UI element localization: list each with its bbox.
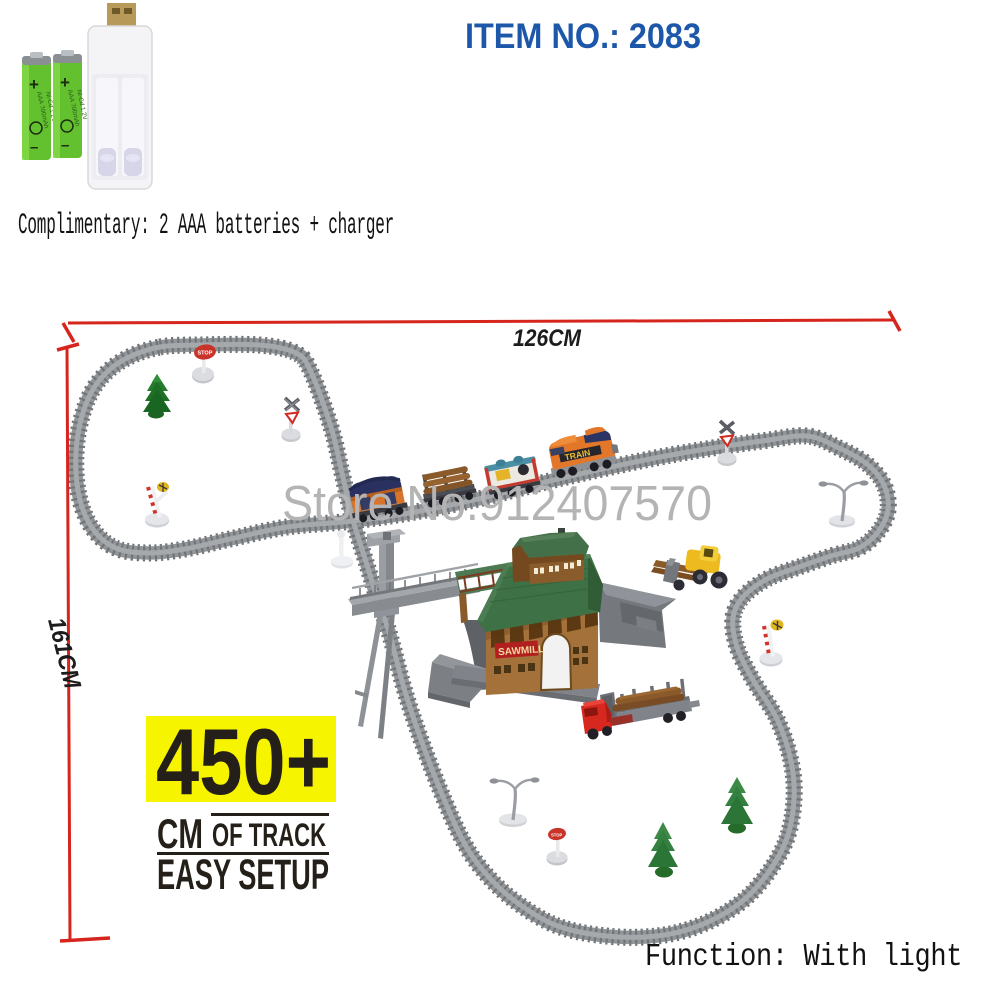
svg-text:STOP: STOP bbox=[198, 351, 213, 357]
svg-text:ITEM NO.: 2083: ITEM NO.: 2083 bbox=[465, 17, 701, 56]
svg-text:EASY SETUP: EASY SETUP bbox=[157, 851, 329, 899]
svg-text:CM: CM bbox=[157, 810, 203, 857]
svg-text:–: – bbox=[61, 137, 69, 154]
svg-text:450+: 450+ bbox=[156, 709, 331, 814]
svg-text:STOP: STOP bbox=[551, 833, 563, 838]
svg-text:OF TRACK: OF TRACK bbox=[212, 817, 326, 853]
svg-text:Store No.912407570: Store No.912407570 bbox=[282, 477, 712, 531]
svg-text:126CM: 126CM bbox=[513, 325, 582, 352]
svg-text:–: – bbox=[30, 139, 38, 156]
svg-text:161CM: 161CM bbox=[42, 615, 86, 692]
